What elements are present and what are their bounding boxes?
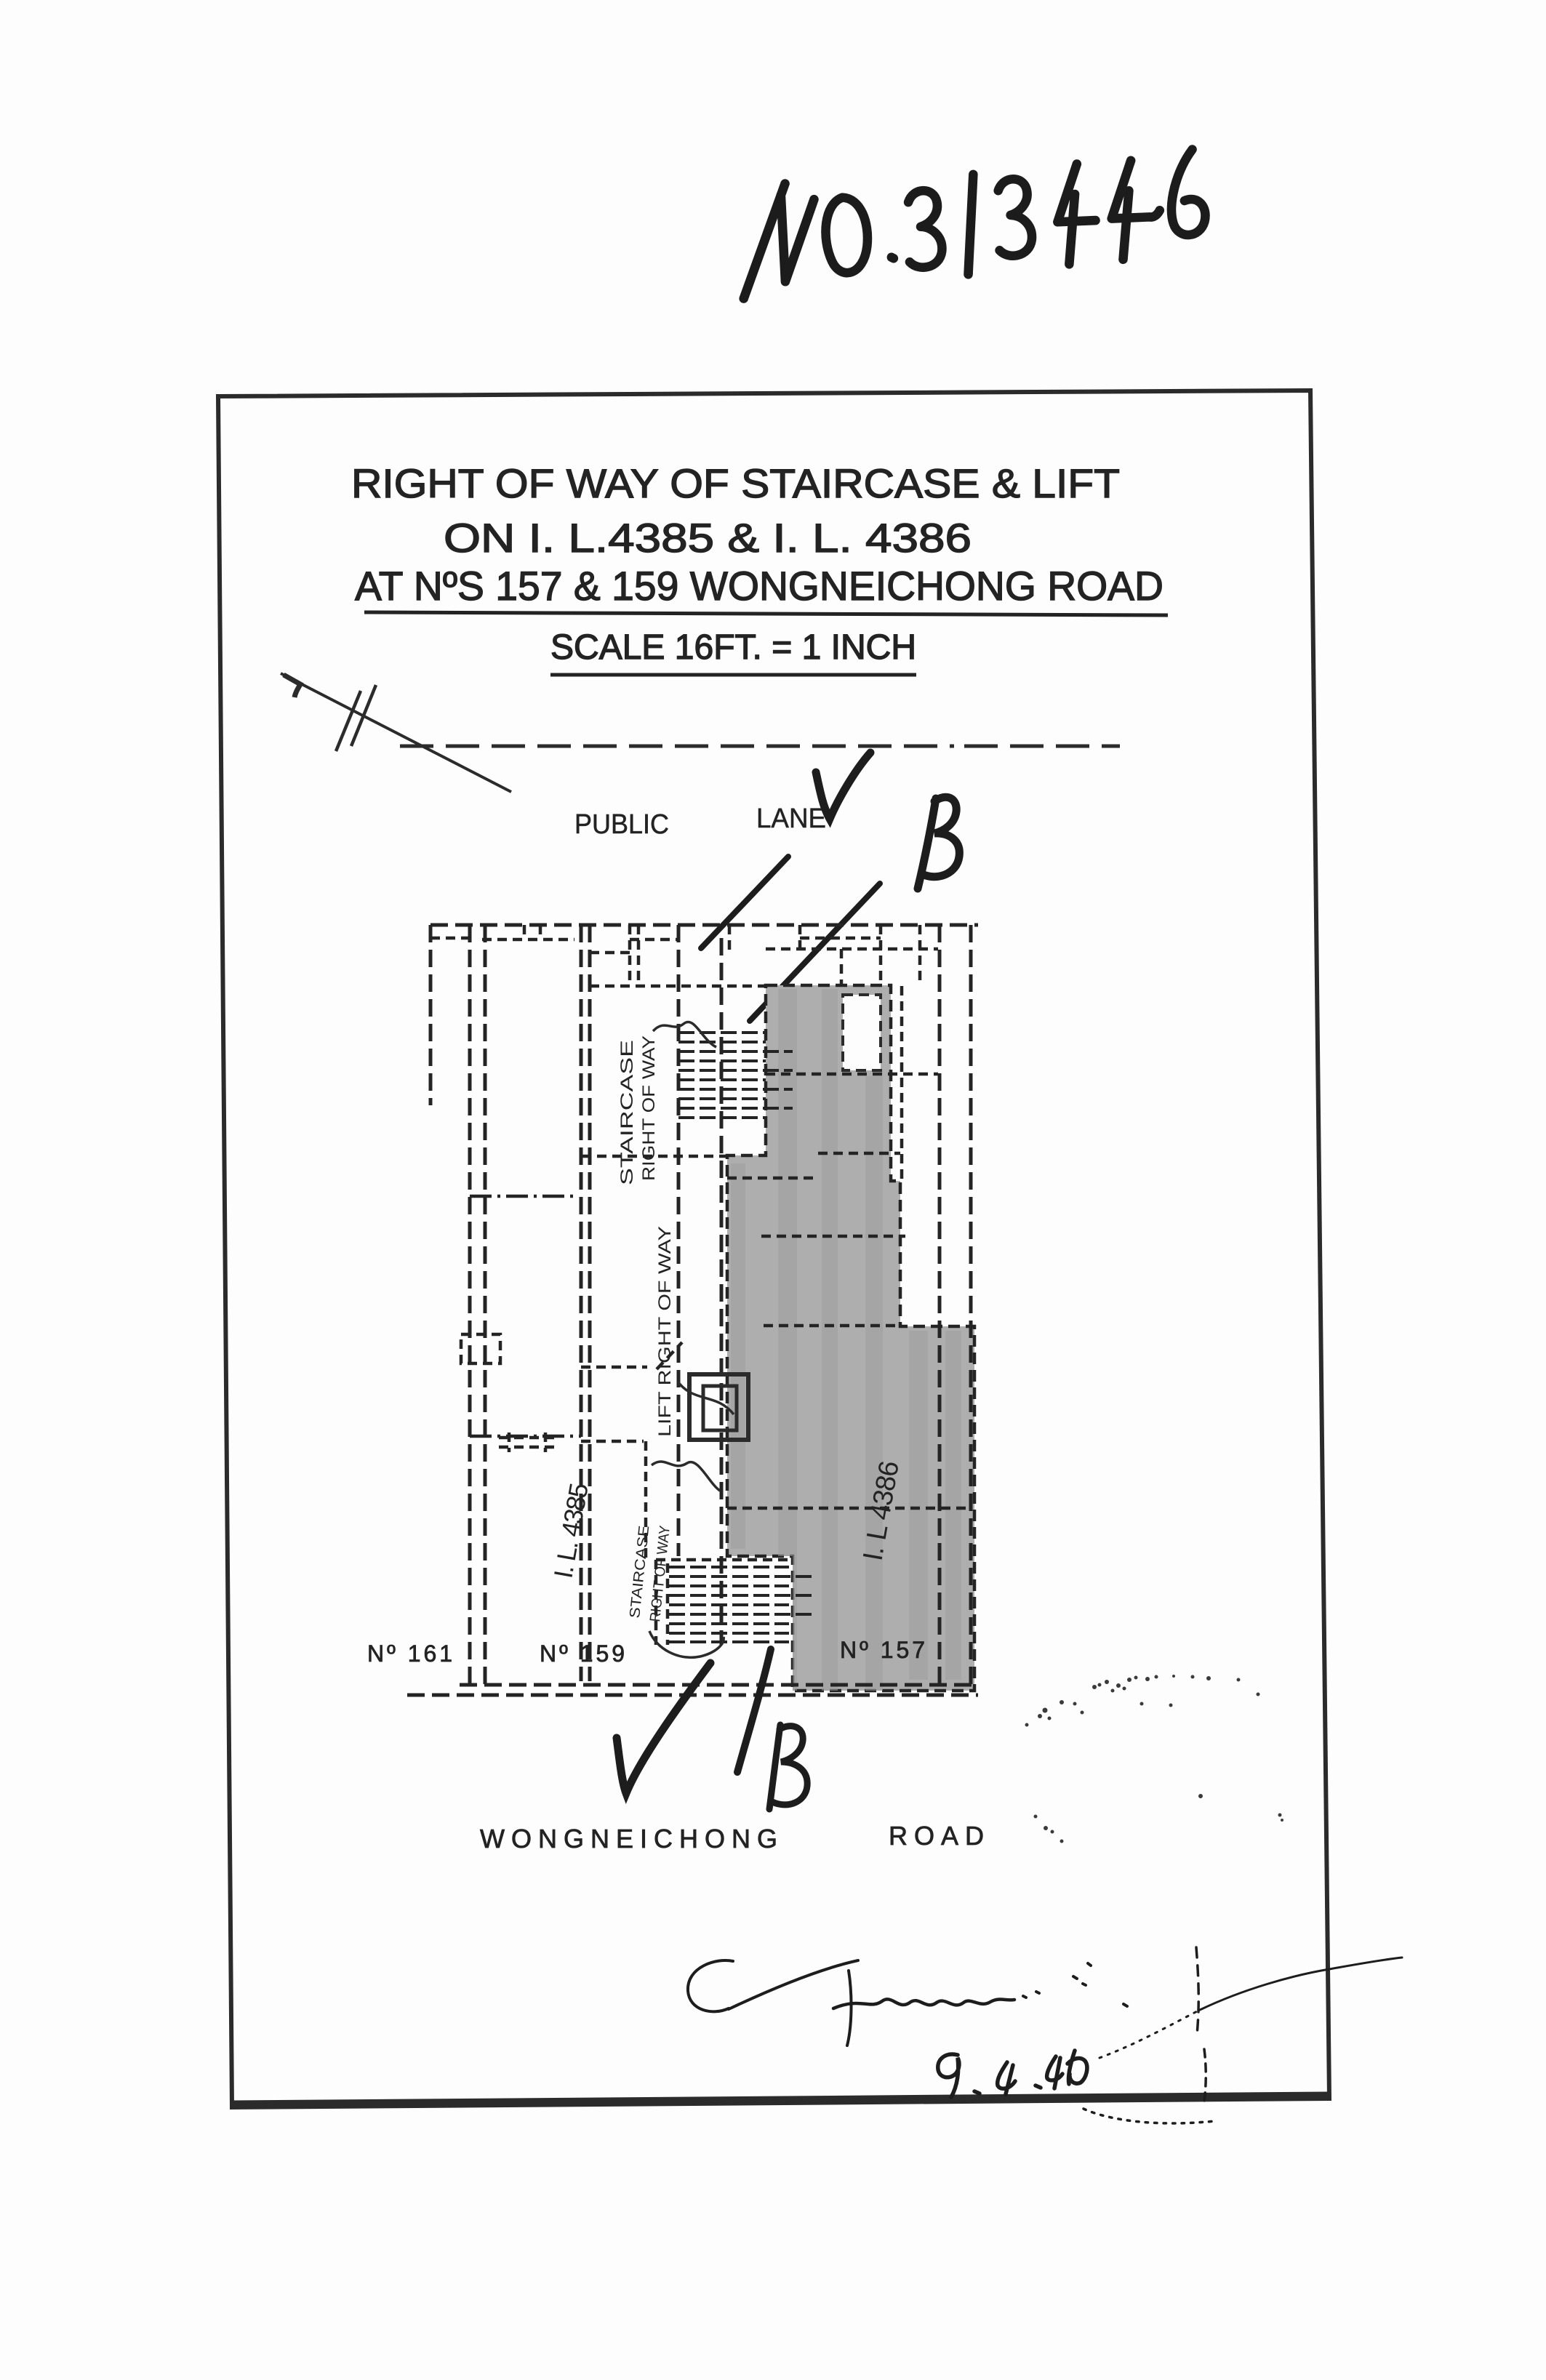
svg-text:ON I. L.4385 & I. L. 4386: ON I. L.4385 & I. L. 4386 (444, 515, 972, 561)
svg-text:ROAD: ROAD (889, 1821, 990, 1851)
svg-text:RIGHT OF WAY OF STAIRCASE & L: RIGHT OF WAY OF STAIRCASE & LIFT (351, 460, 1120, 506)
svg-text:I. L. 4385: I. L. 4385 (548, 1481, 594, 1580)
svg-text:LANE: LANE (756, 804, 826, 834)
svg-text:STAIRCASE: STAIRCASE (617, 1040, 637, 1185)
svg-text:Nº 161: Nº 161 (367, 1640, 455, 1667)
svg-text:PUBLIC: PUBLIC (574, 809, 669, 840)
svg-text:LIFT RIGHT OF WAY: LIFT RIGHT OF WAY (655, 1226, 675, 1437)
svg-text:Nº 157: Nº 157 (840, 1637, 928, 1663)
svg-text:SCALE 16FT. = 1 INCH: SCALE 16FT. = 1 INCH (550, 628, 916, 667)
svg-text:AT NºS 157 & 159 WONGNEICHONG: AT NºS 157 & 159 WONGNEICHONG ROAD (355, 563, 1163, 609)
svg-text:Nº 159: Nº 159 (540, 1640, 628, 1667)
svg-text:RIGHT OF WAY: RIGHT OF WAY (639, 1035, 659, 1181)
svg-text:WONGNEICHONG: WONGNEICHONG (480, 1824, 784, 1854)
